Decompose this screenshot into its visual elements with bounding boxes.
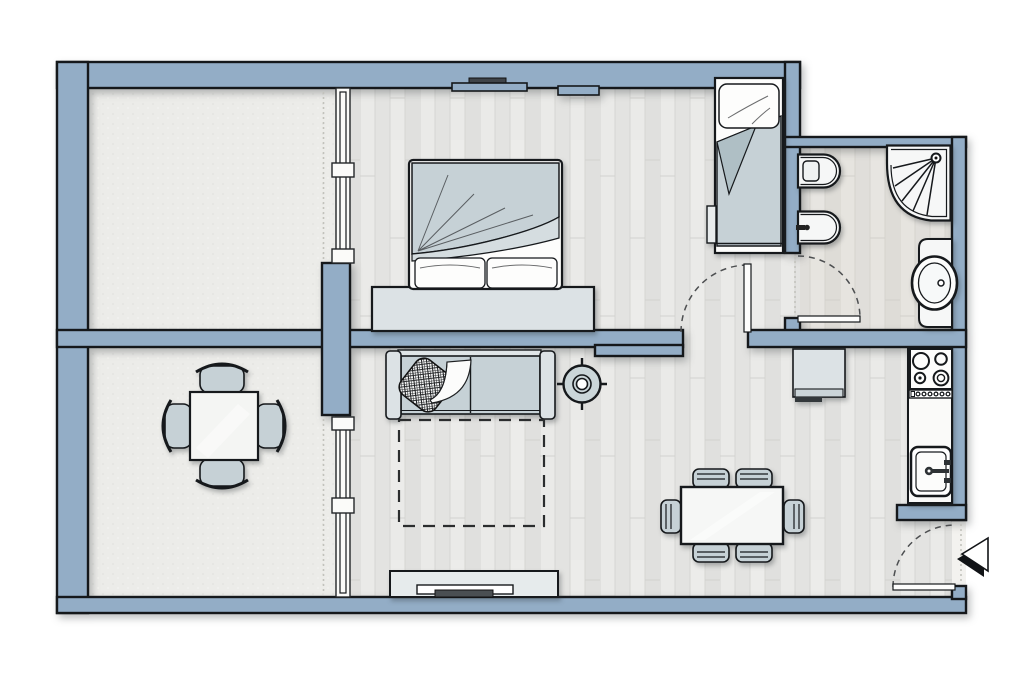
chair-seat (200, 459, 244, 486)
washbasin-bowl-inner (919, 263, 951, 303)
kitchen-wall-stub (897, 505, 966, 520)
window-mullion (332, 498, 354, 513)
balcony-partition-wall (322, 263, 350, 415)
burner-small-dot (918, 376, 921, 379)
floor-plan (0, 0, 1030, 689)
bidet-faucet-dot (804, 225, 810, 231)
faucet-handle-top (944, 460, 951, 465)
chair-seat (256, 404, 283, 448)
bed-base (372, 287, 594, 331)
middle-wall (57, 330, 683, 347)
console-desk (793, 349, 845, 402)
balcony-chair-east (256, 400, 285, 452)
pillow-right (487, 258, 557, 288)
faucet-dot (928, 470, 931, 473)
bathroom-south-wall (748, 330, 966, 347)
dining-chair-bottom-right (736, 543, 772, 562)
middle-wall-thick-segment (595, 345, 683, 356)
faucet-arm (931, 469, 949, 473)
tv-screen (435, 590, 493, 597)
faucet-handle-bottom (944, 478, 951, 483)
dining-chair-bottom-left (693, 543, 729, 562)
balcony-chair-north (196, 364, 248, 393)
wall-shelf-board (452, 83, 527, 91)
pillow-left (415, 258, 485, 288)
shower-drain-dot (935, 157, 938, 160)
top-wall-pier (558, 86, 599, 95)
balcony-chair-west (163, 400, 192, 452)
bidet-faucet-bar (796, 225, 805, 230)
window-mullion (332, 249, 354, 263)
dining-chair-top-right (736, 469, 772, 488)
chair-seat (200, 366, 244, 393)
dining-chair-left (661, 500, 681, 533)
console-stool (795, 397, 822, 402)
kitchen-sink (911, 447, 951, 496)
floor-plan-canvas (0, 0, 1030, 689)
bottom-wall (57, 597, 966, 613)
light-center (577, 379, 588, 390)
tv-unit (390, 571, 558, 597)
window-mullion (332, 417, 354, 430)
kitchen (908, 347, 952, 503)
door-leaf (798, 316, 860, 322)
bidet (796, 212, 840, 244)
toilet (798, 155, 840, 188)
console-front-rail (795, 389, 843, 397)
bed-side-tab (707, 206, 716, 243)
balcony-north-floor (88, 88, 336, 330)
stove (909, 349, 952, 398)
dining-chair-top-left (693, 469, 729, 488)
bedroom-doorway-floor (683, 330, 748, 347)
washbasin (912, 239, 957, 327)
window-mullion (332, 163, 354, 177)
washbasin-drain (938, 280, 944, 286)
door-leaf (744, 264, 751, 332)
top-wall (57, 62, 800, 88)
sofa (386, 350, 555, 419)
sofa-armrest-right (540, 351, 555, 419)
entry-door-leaf (893, 584, 955, 590)
right-wall (952, 137, 966, 520)
balcony-chair-south (196, 459, 248, 488)
bathroom-doorway-floor (785, 253, 800, 318)
single-bed (707, 78, 783, 253)
dining-chair-right (784, 500, 804, 533)
toilet-tank (803, 161, 819, 181)
chair-seat (165, 404, 192, 448)
